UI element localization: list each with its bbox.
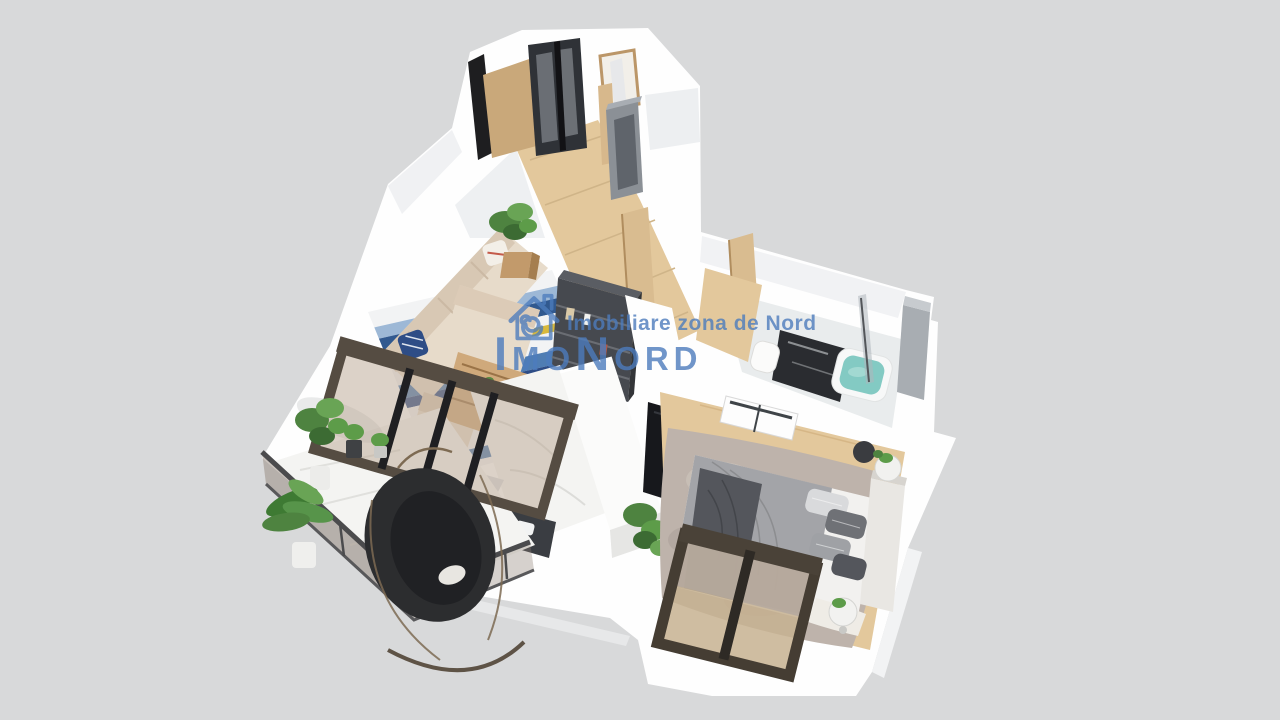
floorplan-render-screenshot: Imobiliare zona de Nord ImoNord [0, 0, 1280, 720]
entrance-steel-door [606, 96, 643, 200]
apartment-3d-floorplan [0, 0, 1280, 720]
